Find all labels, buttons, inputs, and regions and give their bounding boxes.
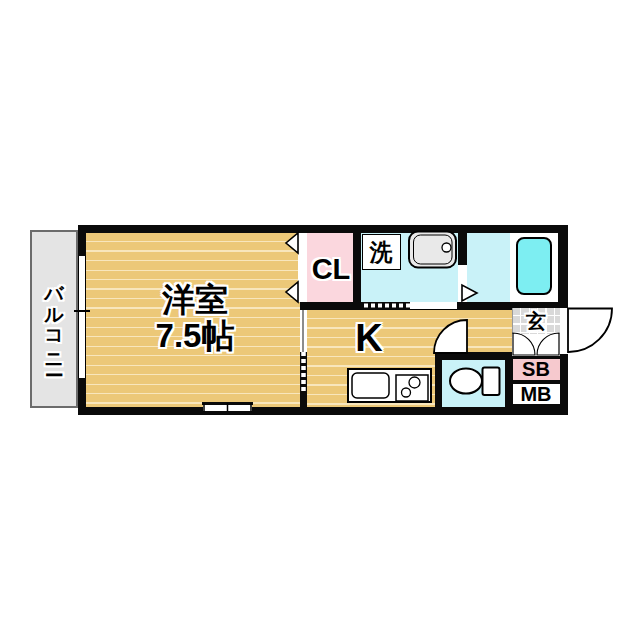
entrance-door-opening (560, 308, 568, 354)
meter-box-label: MB (520, 383, 551, 406)
washroom-sliding-door-icon (410, 302, 457, 310)
balcony-window-icon (78, 256, 86, 378)
balcony-label: バルコニー (41, 271, 67, 367)
western-room-size: 7.5帖 (156, 318, 235, 354)
laundry-label: 洗 (370, 237, 393, 268)
closet-opening (298, 233, 307, 302)
entrance-label: 玄 (526, 308, 546, 335)
bathroom-door-opening (458, 265, 467, 302)
kitchen-sliding-door-opening (300, 310, 307, 352)
entrance-door-icon (568, 309, 612, 353)
closet-label: CL (312, 253, 351, 286)
kitchen-counter (347, 368, 432, 403)
western-room-label: 洋室 7.5帖 (156, 282, 235, 354)
kitchen-label: K (355, 317, 382, 360)
bathtub-icon (516, 237, 552, 295)
room-toilet (442, 360, 505, 407)
south-window-icon (203, 405, 252, 411)
floor-plan: バルコニー 洋室 7.5帖 K CL 洗 玄 SB MB (0, 0, 640, 640)
shoe-box-label: SB (522, 358, 550, 381)
entrance-step (512, 334, 560, 356)
western-room-name: 洋室 (156, 282, 235, 318)
